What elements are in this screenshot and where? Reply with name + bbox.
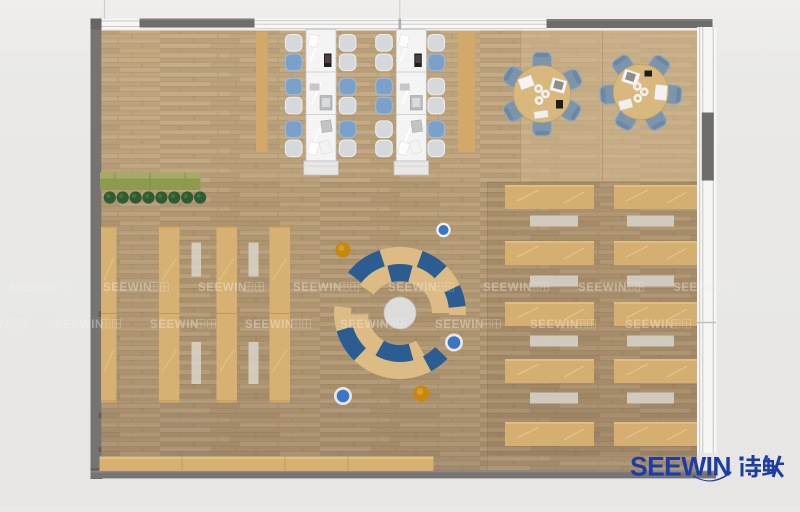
svg-text:SEEWIN: SEEWIN [0,319,9,331]
svg-text:SEEWIN: SEEWIN [55,319,104,331]
svg-text:SEEWIN: SEEWIN [103,282,152,294]
svg-text:SEEWIN: SEEWIN [483,282,532,294]
svg-text:SEEWIN: SEEWIN [245,319,294,331]
svg-text:SEEWIN: SEEWIN [388,282,437,294]
svg-text:SEEWIN: SEEWIN [435,319,484,331]
svg-text:SEEWIN: SEEWIN [150,319,199,331]
svg-text:SEEWIN: SEEWIN [340,319,389,331]
svg-text:SEEWIN: SEEWIN [630,452,731,482]
svg-text:SEEWIN: SEEWIN [8,282,57,294]
svg-text:SEEWIN: SEEWIN [578,282,627,294]
svg-text:SEEWIN: SEEWIN [673,282,722,294]
svg-text:SEEWIN: SEEWIN [293,282,342,294]
svg-text:SEEWIN: SEEWIN [625,319,674,331]
svg-text:SEEWIN: SEEWIN [530,319,579,331]
svg-text:SEEWIN: SEEWIN [198,282,247,294]
